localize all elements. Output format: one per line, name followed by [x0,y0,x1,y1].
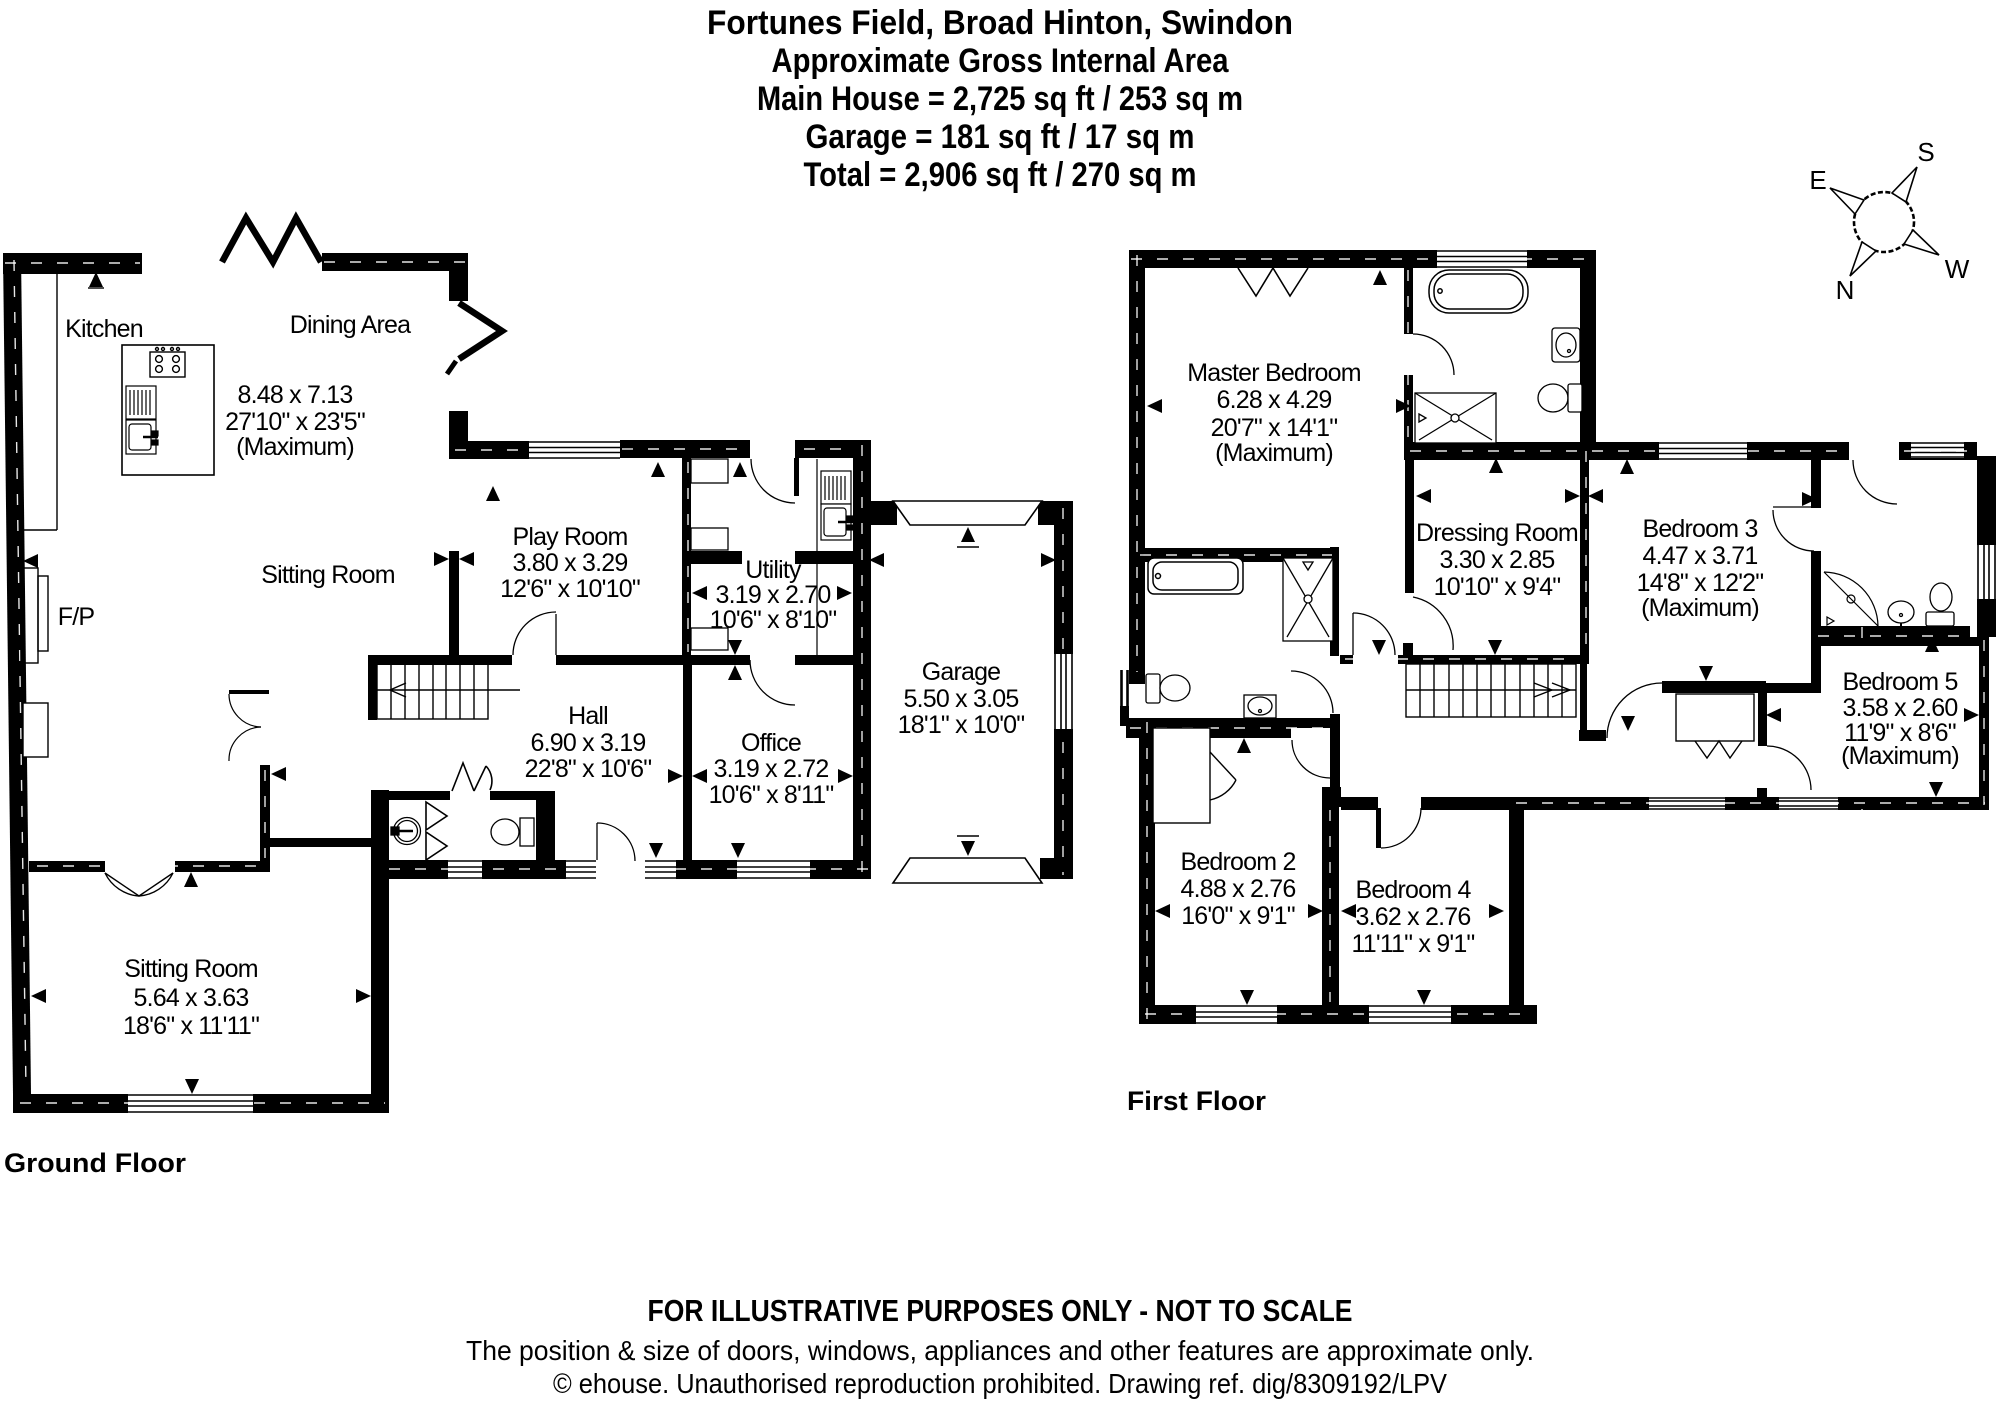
svg-text:18'6" x 11'11": 18'6" x 11'11" [123,1012,259,1040]
svg-text:11'11" x 9'1": 11'11" x 9'1" [1352,930,1475,958]
svg-text:Dressing Room: Dressing Room [1416,519,1578,547]
svg-text:FOR ILLUSTRATIVE PURPOSES ONLY: FOR ILLUSTRATIVE PURPOSES ONLY - NOT TO … [648,1293,1353,1328]
svg-text:5.50 x 3.05: 5.50 x 3.05 [904,685,1019,713]
svg-text:(Maximum): (Maximum) [1641,594,1759,622]
svg-text:6.28 x 4.29: 6.28 x 4.29 [1217,386,1332,414]
svg-text:Kitchen: Kitchen [65,315,143,343]
svg-text:(Maximum): (Maximum) [1841,742,1959,770]
svg-text:4.47 x 3.71: 4.47 x 3.71 [1643,542,1758,570]
svg-text:16'0" x 9'1": 16'0" x 9'1" [1181,902,1295,930]
svg-text:Bedroom 3: Bedroom 3 [1642,515,1757,543]
svg-text:Office: Office [741,729,801,757]
svg-text:Fortunes Field, Broad Hinton,: Fortunes Field, Broad Hinton, Swindon [707,4,1293,42]
svg-text:Garage = 181 sq ft / 17 sq m: Garage = 181 sq ft / 17 sq m [806,118,1195,156]
svg-text:W: W [1945,254,1970,284]
svg-text:8.48 x 7.13: 8.48 x 7.13 [238,381,353,409]
svg-text:Bedroom 5: Bedroom 5 [1842,668,1957,696]
svg-text:Total = 2,906 sq ft / 270 sq m: Total = 2,906 sq ft / 270 sq m [804,156,1197,194]
svg-text:Ground Floor: Ground Floor [4,1148,187,1178]
svg-text:Approximate Gross Internal Are: Approximate Gross Internal Area [772,42,1230,80]
svg-text:3.19 x 2.72: 3.19 x 2.72 [714,755,829,783]
svg-text:(Maximum): (Maximum) [236,433,354,461]
svg-text:S: S [1917,137,1934,167]
svg-text:Sitting Room: Sitting Room [261,561,395,589]
svg-text:27'10" x 23'5": 27'10" x 23'5" [225,408,365,436]
svg-text:Play Room: Play Room [512,523,627,551]
svg-text:10'10" x 9'4": 10'10" x 9'4" [1434,573,1561,601]
svg-text:Bedroom 2: Bedroom 2 [1180,848,1295,876]
svg-text:3.30 x 2.85: 3.30 x 2.85 [1440,546,1555,574]
svg-text:10'6" x 8'11": 10'6" x 8'11" [709,781,834,809]
svg-text:3.80 x 3.29: 3.80 x 3.29 [513,549,628,577]
svg-text:© ehouse. Unauthorised reprodu: © ehouse. Unauthorised reproduction proh… [553,1368,1447,1399]
svg-text:6.90 x 3.19: 6.90 x 3.19 [531,729,646,757]
svg-text:14'8" x 12'2": 14'8" x 12'2" [1637,569,1764,597]
svg-text:3.19 x 2.70: 3.19 x 2.70 [716,581,831,609]
svg-text:The position & size of doors,: The position & size of doors, windows, a… [466,1335,1534,1366]
svg-text:Sitting Room: Sitting Room [124,955,258,983]
svg-text:12'6" x 10'10": 12'6" x 10'10" [500,575,640,603]
svg-text:Main House = 2,725 sq ft / 253: Main House = 2,725 sq ft / 253 sq m [757,80,1243,118]
svg-text:(Maximum): (Maximum) [1215,439,1333,467]
svg-text:Dining Area: Dining Area [290,311,411,339]
svg-text:First Floor: First Floor [1127,1086,1267,1116]
svg-text:Utility: Utility [745,556,802,584]
svg-text:Bedroom 4: Bedroom 4 [1355,876,1471,904]
svg-text:Master Bedroom: Master Bedroom [1187,359,1361,387]
svg-text:5.64 x 3.63: 5.64 x 3.63 [134,984,249,1012]
svg-text:E: E [1809,165,1826,195]
svg-text:N: N [1836,275,1855,305]
svg-text:20'7" x 14'1": 20'7" x 14'1" [1211,414,1338,442]
svg-text:22'8" x 10'6": 22'8" x 10'6" [525,755,652,783]
svg-text:3.62 x 2.76: 3.62 x 2.76 [1356,903,1471,931]
svg-text:18'1" x 10'0": 18'1" x 10'0" [898,711,1025,739]
svg-text:4.88 x 2.76: 4.88 x 2.76 [1181,875,1296,903]
svg-text:F/P: F/P [58,603,95,631]
svg-text:Garage: Garage [922,658,1001,686]
svg-text:10'6" x 8'10": 10'6" x 8'10" [710,606,837,634]
svg-text:Hall: Hall [568,702,608,730]
svg-text:3.58 x 2.60: 3.58 x 2.60 [1843,694,1958,722]
